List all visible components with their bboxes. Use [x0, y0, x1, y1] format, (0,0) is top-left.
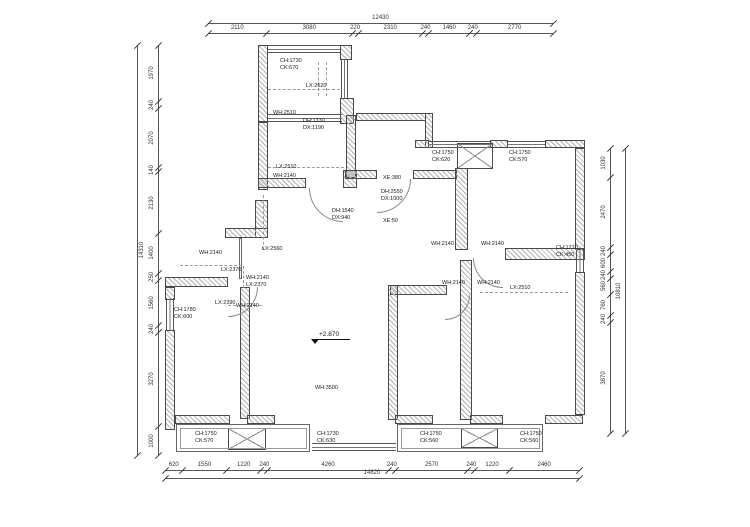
dimension-segment-label: 140: [149, 165, 155, 175]
window: [508, 141, 545, 148]
dimension-segment-label: 2470: [601, 206, 607, 219]
dimension-segment-label: 2570: [425, 462, 438, 468]
annotation-label: CH:1710CK:450: [556, 245, 578, 258]
dimension-segment-label: 2310: [384, 25, 397, 31]
annotation-label: DH:1540DX:940: [332, 208, 354, 221]
annotation-label: LX:2390: [215, 300, 236, 307]
dimension-segment-label: 240: [387, 462, 397, 468]
dimension-total-label: 14820: [364, 470, 381, 476]
wall-segment: [247, 415, 275, 424]
dimension-segment-label: 1220: [485, 462, 498, 468]
dimension-total-line-left: [137, 45, 138, 455]
annotation-label: CH:1750CK:570: [509, 150, 531, 163]
annotation-line: WH:2140: [236, 303, 259, 310]
dimension-segment-label: 2070: [149, 132, 155, 145]
annotation-label: XE:50: [383, 218, 398, 225]
dimension-segment-label: 1030: [601, 156, 607, 169]
annotation-label: LX:2370: [221, 267, 242, 274]
dimension-total-line-bottom: [165, 478, 579, 479]
wall-segment: [175, 415, 230, 424]
annotation-line: DX:940: [332, 215, 354, 222]
annotation-label: WH:2140: [442, 280, 465, 287]
dimension-segment-label: 1220: [237, 462, 250, 468]
annotation-line: WH:2140: [199, 250, 222, 257]
annotation-label: CH:1750CK:620: [432, 150, 454, 163]
beam-dashed-line: [180, 265, 242, 266]
level-marker-line: [318, 339, 350, 340]
beam-dashed-line: [243, 266, 244, 288]
dimension-segment-label: 1460: [443, 25, 456, 31]
annotation-line: LX:2390: [215, 300, 236, 307]
dimension-segment-label: 240: [601, 314, 607, 324]
annotation-line: XE:50: [383, 218, 398, 225]
wall-segment: [575, 148, 585, 250]
annotation-line: CH:1730: [317, 431, 339, 438]
dimension-segment-label: 600: [601, 258, 607, 268]
wall-segment: [165, 330, 175, 430]
dimension-segment-label: 240: [421, 25, 431, 31]
wall-segment: [165, 277, 228, 287]
annotation-label: LX:2620: [306, 83, 327, 90]
dimension-segment-label: 2130: [149, 196, 155, 209]
wall-segment: [346, 115, 356, 178]
annotation-label: WH:2140LX:2370: [246, 275, 269, 288]
annotation-label: WH:2140: [236, 303, 259, 310]
annotation-line: LX:2370: [246, 282, 269, 289]
wall-segment: [395, 415, 433, 424]
dimension-segment-label: 2460: [537, 462, 550, 468]
dimension-total-line-right: [625, 148, 626, 433]
annotation-label: WH:3500: [315, 385, 338, 392]
floor-plan: 2110308022023102401460240277012430620155…: [0, 0, 750, 527]
dimension-segment-label: 240: [468, 25, 478, 31]
annotation-line: CH:1750: [432, 150, 454, 157]
dimension-segment-label: 1560: [149, 296, 155, 309]
annotation-line: CK:560: [420, 438, 442, 445]
annotation-line: WH:2140: [442, 280, 465, 287]
annotation-line: CH:1730: [280, 58, 302, 65]
dimension-segment-label: 240: [601, 270, 607, 280]
window: [341, 60, 348, 98]
annotation-label: CH:1730CK:630: [317, 431, 339, 444]
annotation-line: WH:2140: [246, 275, 269, 282]
annotation-line: LX:2510: [510, 285, 531, 292]
annotation-line: DH:2550: [381, 189, 403, 196]
annotation-line: CK:670: [280, 65, 302, 72]
window: [166, 298, 174, 330]
dimension-segment-label: 240: [259, 462, 269, 468]
beam-dashed-line: [268, 89, 340, 90]
wall-segment: [545, 415, 583, 424]
annotation-label: CH:1750CK:570: [195, 431, 217, 444]
annotation-line: CH:1780: [174, 307, 196, 314]
dimension-segment-label: 620: [169, 462, 179, 468]
annotation-line: XE:380: [383, 175, 401, 182]
shaft-box: [457, 143, 493, 169]
dimension-segment-label: 240: [466, 462, 476, 468]
dimension-segment-label: 3080: [303, 25, 316, 31]
annotation-line: LX:2370: [221, 267, 242, 274]
window: [268, 45, 340, 53]
annotation-label: WH:2140: [481, 241, 504, 248]
dimension-segment-label: 760: [601, 300, 607, 310]
annotation-line: CK:570: [509, 157, 531, 164]
annotation-label: WH:2510: [273, 110, 296, 117]
dimension-segment-label: 2110: [231, 25, 244, 31]
window: [312, 443, 396, 451]
annotation-line: DH:1330: [303, 118, 325, 125]
wall-segment: [455, 168, 468, 250]
annotation-label: LX:2510: [276, 164, 297, 171]
dimension-segment-label: 1970: [149, 67, 155, 80]
annotation-line: WH:2140: [481, 241, 504, 248]
dimension-segment-label: 3270: [149, 373, 155, 386]
annotation-label: WH:2140: [477, 280, 500, 287]
wall-segment: [225, 228, 268, 238]
dimension-segment-label: 240: [149, 100, 155, 110]
annotation-label: DH:2550DX:1000: [381, 189, 403, 202]
annotation-line: LX:2620: [306, 83, 327, 90]
wall-segment: [545, 140, 585, 148]
wall-segment: [340, 45, 352, 60]
wall-segment: [356, 113, 426, 121]
wall-segment: [470, 415, 503, 424]
annotation-line: DH:1540: [332, 208, 354, 215]
annotation-line: CH:1750: [520, 431, 542, 438]
annotation-line: CH:1750: [195, 431, 217, 438]
annotation-label: LX:2560: [262, 246, 283, 253]
annotation-line: CH:1750: [420, 431, 442, 438]
dimension-segment-label: 240: [149, 324, 155, 334]
beam-dashed-line: [480, 292, 568, 293]
dimension-segment-label: 560: [601, 281, 607, 291]
annotation-label: DH:1330DX:1190: [303, 118, 325, 131]
annotation-line: WH:2140: [431, 241, 454, 248]
annotation-label: CH:1750CK:560: [520, 431, 542, 444]
annotation-label: CH:1780CK:600: [174, 307, 196, 320]
wall-segment: [258, 45, 268, 122]
annotation-label: CH:1750CK:560: [420, 431, 442, 444]
annotation-line: WH:3500: [315, 385, 338, 392]
annotation-line: LX:2510: [276, 164, 297, 171]
dimension-line-right: [610, 148, 611, 433]
annotation-label: LX:2510: [510, 285, 531, 292]
beam-dashed-line: [263, 195, 264, 250]
annotation-label: CH:1730CK:670: [280, 58, 302, 71]
wall-segment: [388, 285, 398, 420]
annotation-line: CK:570: [195, 438, 217, 445]
annotation-label: XE:380: [383, 175, 401, 182]
annotation-line: WH:2140: [477, 280, 500, 287]
wall-segment: [258, 178, 306, 188]
dimension-line-top: [208, 33, 553, 34]
dimension-segment-label: 240: [601, 246, 607, 256]
wall-segment: [415, 140, 429, 148]
dimension-segment-label: 2770: [508, 25, 521, 31]
wall-segment: [413, 170, 457, 179]
annotation-label: WH:2140: [431, 241, 454, 248]
annotation-label: WH:2140: [199, 250, 222, 257]
dimension-segment-label: 1550: [198, 462, 211, 468]
annotation-line: CH:1750: [509, 150, 531, 157]
dimension-segment-label: 4260: [321, 462, 334, 468]
dimension-segment-label: 1400: [149, 247, 155, 260]
wall-segment: [345, 170, 377, 179]
annotation-line: DX:1190: [303, 125, 325, 132]
dimension-total-label: 10810: [616, 282, 622, 299]
beam-dashed-line: [318, 62, 319, 96]
wall-segment: [575, 272, 585, 415]
annotation-label: WH:2140: [273, 173, 296, 180]
annotation-line: CH:1710: [556, 245, 578, 252]
dimension-segment-label: 220: [350, 25, 360, 31]
wall-segment: [390, 285, 447, 295]
annotation-line: CK:630: [317, 438, 339, 445]
dimension-segment-label: 250: [149, 272, 155, 282]
annotation-line: WH:2510: [273, 110, 296, 117]
annotation-line: LX:2560: [262, 246, 283, 253]
beam-dashed-line: [326, 62, 327, 96]
dimension-segment-label: 3870: [601, 371, 607, 384]
dimension-total-line-top: [208, 23, 553, 24]
dimension-total-label: 14310: [139, 242, 145, 259]
annotation-line: CK:560: [520, 438, 542, 445]
dimension-total-label: 12430: [372, 15, 389, 21]
annotation-line: CK:620: [432, 157, 454, 164]
annotation-line: CK:450: [556, 252, 578, 259]
annotation-line: WH:2140: [273, 173, 296, 180]
dimension-segment-label: 1000: [149, 434, 155, 447]
annotation-line: CK:600: [174, 314, 196, 321]
annotation-line: DX:1000: [381, 196, 403, 203]
level-marker-value: +2.870: [319, 331, 339, 338]
